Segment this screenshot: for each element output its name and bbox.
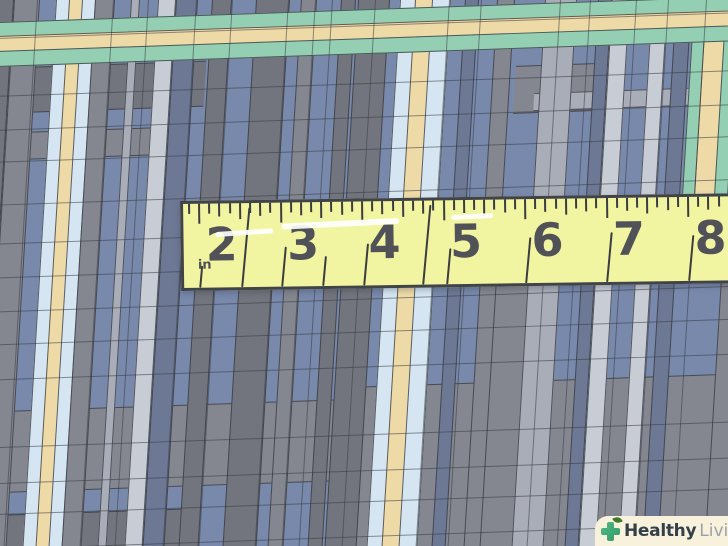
ruler-unit-label: in <box>198 258 212 273</box>
ruler-division-line <box>281 247 287 287</box>
ruler-tick <box>443 200 445 220</box>
ruler-tick <box>361 201 363 221</box>
ruler-tick <box>198 204 200 224</box>
ruler-tick <box>616 198 618 208</box>
ruler-tick <box>493 200 495 210</box>
healthy-living-logo: Healthy Living <box>595 516 728 546</box>
logo-text-bold: Healthy <box>624 521 696 541</box>
cross-horizontal-bar <box>601 528 620 535</box>
ruler-tick <box>524 199 526 219</box>
ruler-tick <box>351 202 353 212</box>
ruler-tick <box>371 201 373 211</box>
ruler-tick <box>432 200 434 210</box>
ruler-tick <box>310 202 312 212</box>
ruler-tick <box>422 201 424 214</box>
ruler-tick <box>392 201 394 211</box>
ruler-tick <box>687 197 689 217</box>
ruler-tick <box>290 202 292 212</box>
ruler-tick <box>544 199 546 212</box>
ruler-tick <box>381 201 383 214</box>
ruler-tick <box>473 200 475 210</box>
ruler-tick <box>218 203 220 216</box>
ruler-tick <box>239 203 241 219</box>
shine-highlight <box>451 213 493 220</box>
ruler-division-line <box>422 205 431 285</box>
ruler-tick <box>565 199 567 215</box>
ruler-tick <box>412 201 414 211</box>
ruler-tick <box>656 197 658 207</box>
ruler-tick <box>626 198 628 211</box>
ruler-tick <box>330 202 332 212</box>
ruler-tick <box>188 204 190 214</box>
ruler-tick <box>534 199 536 209</box>
ruler-tick <box>677 197 679 207</box>
ruler-tick <box>697 197 699 207</box>
ruler-tick <box>453 200 455 210</box>
ruler-number: 8 <box>694 214 727 260</box>
tape-measure: 2345678 in <box>180 193 728 291</box>
ruler-tick <box>575 198 577 208</box>
ruler-division-line <box>606 232 613 282</box>
ruler-number: 5 <box>450 218 483 264</box>
health-cross-icon <box>600 521 621 542</box>
ruler-tick <box>320 202 322 218</box>
ruler-tick <box>514 199 516 209</box>
ruler-tick <box>667 197 669 210</box>
logo-text-light: Living <box>699 521 728 541</box>
ruler-tick <box>229 203 231 213</box>
ruler-tick <box>555 199 557 209</box>
ruler-tick <box>606 198 608 218</box>
ruler-tick <box>463 200 465 213</box>
ruler-tick <box>636 198 638 208</box>
ruler-tick <box>341 202 343 215</box>
ruler-number: 7 <box>613 216 646 262</box>
ruler-number: 4 <box>368 219 401 265</box>
ruler-division-line <box>241 207 250 287</box>
illustration-canvas: 2345678 in Healthy Living <box>0 0 728 546</box>
ruler-tick <box>208 204 210 214</box>
ruler-tick <box>280 203 282 223</box>
ruler-tick <box>585 198 587 211</box>
ruler-tick <box>504 199 506 212</box>
ruler-division-line <box>688 235 694 281</box>
ruler-division-line <box>322 256 327 286</box>
ruler-tick <box>718 196 720 206</box>
ruler-tick <box>269 203 271 213</box>
ruler-division-line <box>525 237 531 283</box>
ruler-tick <box>300 202 302 215</box>
ruler-tick <box>646 197 648 213</box>
ruler-tick <box>707 197 709 210</box>
ruler-number: 6 <box>531 217 564 263</box>
ruler-tick <box>402 201 404 217</box>
ruler-tick <box>595 198 597 208</box>
ruler-tick <box>259 203 261 216</box>
